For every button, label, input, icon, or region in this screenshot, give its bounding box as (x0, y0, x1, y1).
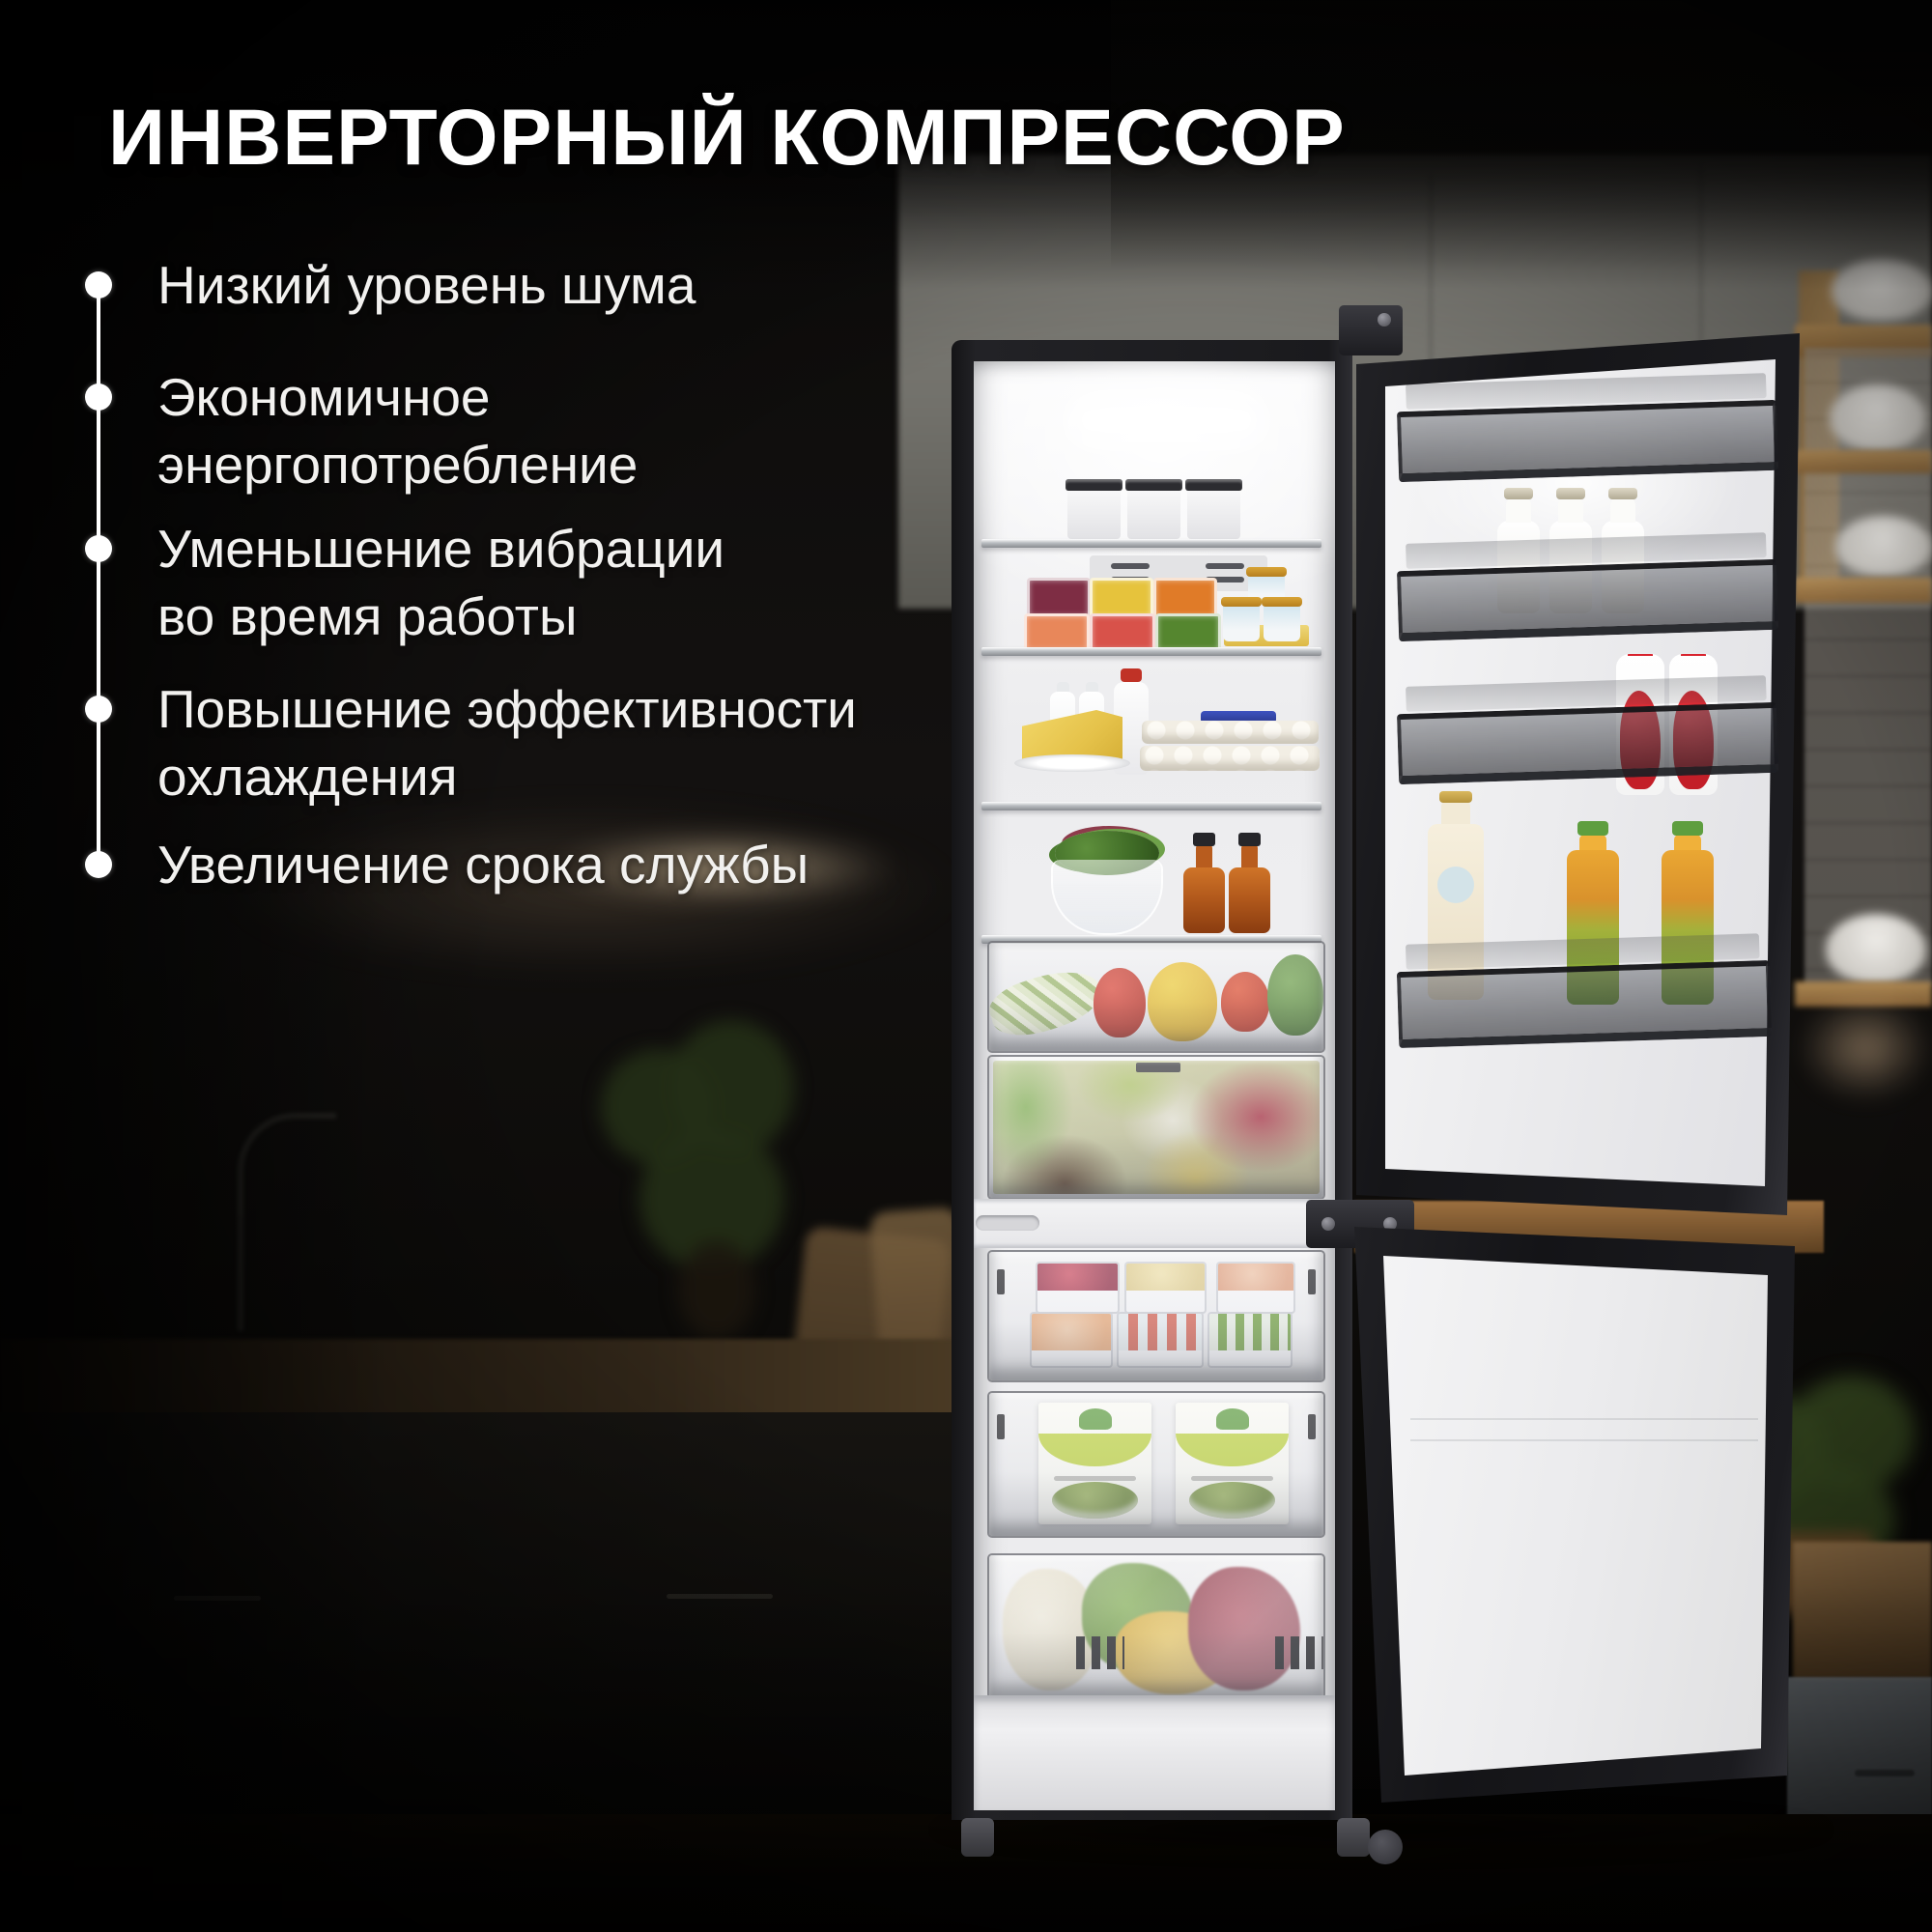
label-band (1176, 1434, 1289, 1466)
frozen-box (1036, 1262, 1120, 1314)
door-bin (1397, 559, 1778, 641)
plastic-sheen (989, 1555, 1323, 1697)
food-container (1187, 479, 1240, 539)
freezer-drawer-1 (987, 1250, 1325, 1382)
door-bin (1397, 702, 1778, 784)
iced-tea-bottle (1229, 867, 1270, 933)
feature-item-cooling: Повышение эффективности охлаждения (85, 675, 857, 810)
fridge-foot (1337, 1818, 1370, 1857)
panel-groove (1410, 1418, 1758, 1420)
food-container (1067, 479, 1121, 539)
crab-stick-box (1090, 613, 1155, 652)
under-shelf-light (1799, 995, 1932, 1101)
bullet-dot-icon (85, 271, 112, 298)
bowl-stack (1826, 914, 1926, 983)
label-text-line (1191, 1476, 1272, 1481)
feature-item-lifespan: Увеличение срока службы (85, 831, 809, 898)
door-bin (1397, 960, 1772, 1048)
bullet-dot-icon (85, 696, 112, 723)
food-container (1127, 479, 1180, 539)
frozen-food-carton (1176, 1403, 1289, 1524)
bullet-dot-icon (85, 535, 112, 562)
berry-box (1027, 578, 1091, 618)
fridge-foot (961, 1818, 994, 1857)
frozen-cauliflower-bag (1003, 1569, 1099, 1690)
bullet-dot-icon (85, 384, 112, 411)
salmon-box (1024, 613, 1090, 652)
page-title: ИНВЕРТОРНЫЙ КОМПРЕССОР (108, 93, 1461, 184)
drawer-vent-slots (1076, 1636, 1124, 1669)
yellow-bell-pepper (1148, 962, 1217, 1041)
plate (1014, 754, 1130, 772)
wood-shelf (1795, 578, 1932, 603)
feature-text-line: охлаждения (157, 743, 857, 810)
white-bowl (1830, 384, 1926, 450)
white-bowl (1835, 516, 1932, 576)
brand-crest (1079, 1408, 1112, 1430)
right-countertop (1793, 1542, 1932, 1679)
greens-box (1155, 613, 1221, 652)
plant-silhouette (591, 1020, 813, 1339)
fridge-cabinet (952, 340, 1352, 1820)
glass-shelf (981, 802, 1321, 810)
frozen-box (1030, 1312, 1113, 1368)
feature-text-line: Экономичное (157, 363, 638, 431)
lettuce-greens (1267, 954, 1323, 1036)
food-photo (1052, 1482, 1138, 1519)
hinge-pin (1321, 1217, 1335, 1231)
fridge-interior (974, 361, 1335, 1810)
led-lamp (1082, 410, 1251, 431)
top-hinge (1339, 305, 1403, 355)
bullet-dot-icon (85, 851, 112, 878)
freezer-door (1352, 1219, 1806, 1811)
panel-groove (1410, 1439, 1758, 1441)
feature-text-line: энергопотребление (157, 431, 638, 498)
crisper-drawer (987, 941, 1325, 1053)
wood-shelf (1795, 450, 1932, 473)
drawer-clip (997, 1269, 1005, 1294)
drawer-print (993, 1061, 1320, 1194)
egg-tray (1140, 746, 1320, 771)
food-photo (1189, 1482, 1275, 1519)
freezer-drawer-2 (987, 1391, 1325, 1538)
tomato (1221, 972, 1269, 1032)
fridge-door (1352, 319, 1814, 1222)
hinge-pin (1378, 313, 1391, 327)
drawer-clip (1308, 1414, 1316, 1439)
feature-item-noise: Низкий уровень шума (85, 251, 696, 319)
yogurt-cup (1264, 603, 1300, 641)
glass-shelf (981, 539, 1321, 548)
glass-shelf (981, 647, 1321, 656)
label-band (1038, 1434, 1151, 1466)
red-bell-pepper (1094, 968, 1146, 1037)
freezer-door-panel (1352, 1219, 1806, 1811)
drawer-clip (997, 1414, 1005, 1439)
pineapple-box (1090, 578, 1153, 618)
drawer-vent-slots (1275, 1636, 1323, 1669)
iced-tea-bottle (1183, 867, 1225, 933)
promo-banner: ИНВЕРТОРНЫЙ КОМПРЕССОР Низкий уровень шу… (0, 0, 1932, 1932)
cabinet-base (974, 1695, 1335, 1810)
door-bin (1397, 400, 1778, 482)
frozen-food-carton (1038, 1403, 1151, 1524)
brand-crest (1216, 1408, 1249, 1430)
drawer-handle-notch (976, 1215, 1039, 1231)
feature-text-line: Низкий уровень шума (157, 251, 696, 319)
fresh-zone-drawer (987, 1055, 1325, 1200)
frozen-berries-bag (1188, 1567, 1300, 1690)
feature-item-energy: Экономичное энергопотребление (85, 363, 638, 498)
left-countertop (0, 1339, 956, 1420)
yogurt-cup (1223, 603, 1260, 641)
frozen-box (1207, 1312, 1293, 1368)
frozen-box (1124, 1262, 1207, 1314)
feature-text-line: во время работы (157, 582, 724, 650)
green-onions (987, 959, 1109, 1046)
label-text-line (1054, 1476, 1135, 1481)
frozen-corn-bag (1115, 1611, 1233, 1694)
cabinet-handle (1855, 1770, 1915, 1776)
salad-bowl (1051, 860, 1163, 935)
feature-item-vibration: Уменьшение вибрации во время работы (85, 515, 724, 650)
faucet-silhouette (238, 1113, 336, 1225)
bottle-label (1437, 867, 1474, 903)
frozen-beans-bag (1082, 1563, 1194, 1671)
freezer-drawer-3 (987, 1553, 1325, 1699)
egg-tray (1142, 721, 1319, 744)
feature-text-line: Увеличение срока службы (157, 831, 809, 898)
frozen-box (1216, 1262, 1295, 1314)
drawer-label (1136, 1063, 1180, 1072)
compartment-divider (974, 1199, 1335, 1248)
feature-text-line: Повышение эффективности (157, 675, 857, 743)
carrot-box (1153, 578, 1217, 618)
feature-text-line: Уменьшение вибрации (157, 515, 724, 582)
drawer-clip (1308, 1269, 1316, 1294)
door-caster (1368, 1830, 1403, 1864)
frozen-box (1117, 1312, 1204, 1368)
